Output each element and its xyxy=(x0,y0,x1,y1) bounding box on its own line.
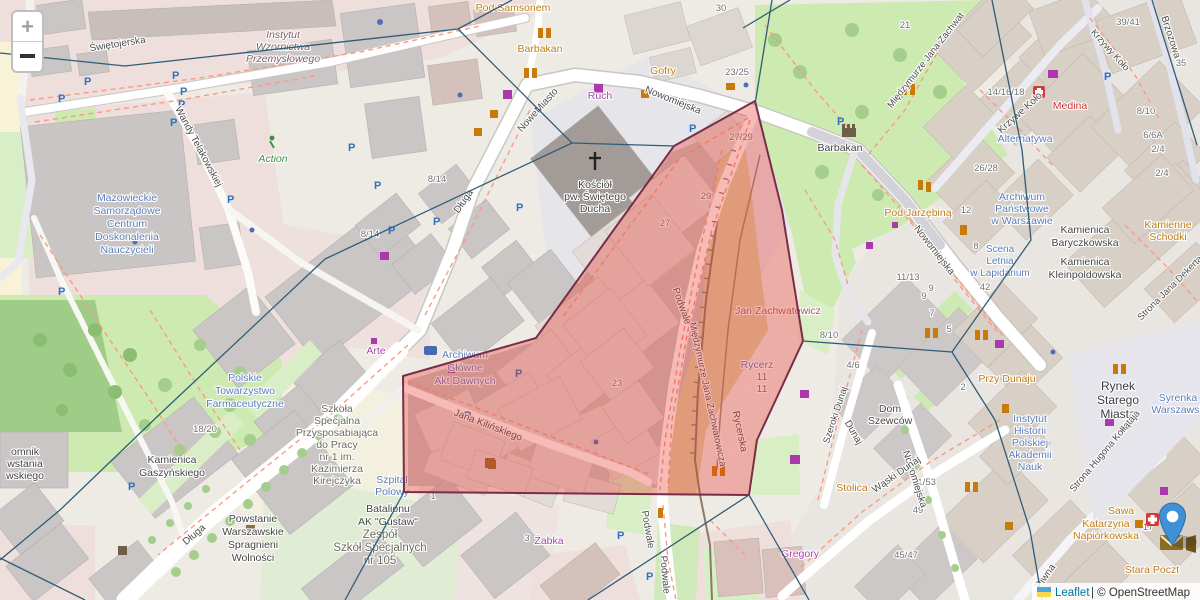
svg-text:P: P xyxy=(374,180,381,192)
svg-text:2/4: 2/4 xyxy=(1155,168,1168,179)
svg-text:Przy Dunaju: Przy Dunaju xyxy=(978,373,1035,385)
svg-text:2: 2 xyxy=(960,382,965,393)
svg-text:Spragnieni: Spragnieni xyxy=(228,539,278,551)
svg-text:+: + xyxy=(21,14,34,39)
svg-text:11/13: 11/13 xyxy=(896,272,919,283)
svg-text:42: 42 xyxy=(980,282,991,293)
svg-text:P: P xyxy=(646,571,653,583)
svg-text:Archiwum: Archiwum xyxy=(999,191,1045,203)
svg-text:Pod Samsonem: Pod Samsonem xyxy=(476,2,551,14)
svg-text:omnik: omnik xyxy=(11,446,40,458)
svg-text:45/47: 45/47 xyxy=(894,550,918,561)
svg-text:Doskonalenia: Doskonalenia xyxy=(95,231,159,243)
svg-text:w Lapidarium: w Lapidarium xyxy=(969,268,1029,279)
svg-text:Pod Jarzębiną: Pod Jarzębiną xyxy=(884,207,951,219)
svg-text:Powstanie: Powstanie xyxy=(229,513,278,525)
svg-text:Kleinpoldowska: Kleinpoldowska xyxy=(1049,269,1122,281)
svg-text:Samorządowe: Samorządowe xyxy=(93,205,160,217)
svg-text:P: P xyxy=(58,93,65,105)
svg-text:3: 3 xyxy=(524,533,529,544)
svg-text:P: P xyxy=(170,117,177,129)
svg-text:Farmaceutyczne: Farmaceutyczne xyxy=(206,398,284,410)
svg-text:Kamienne: Kamienne xyxy=(1144,219,1191,231)
svg-text:Gregory: Gregory xyxy=(781,548,820,560)
svg-text:P: P xyxy=(58,286,65,298)
svg-text:Stolica: Stolica xyxy=(836,482,868,494)
svg-text:5: 5 xyxy=(946,324,951,335)
svg-text:26/28: 26/28 xyxy=(974,163,998,174)
svg-text:35: 35 xyxy=(1176,58,1187,69)
svg-text:8/14: 8/14 xyxy=(428,174,447,185)
svg-text:Kamienica: Kamienica xyxy=(147,454,196,466)
svg-text:P: P xyxy=(516,202,523,214)
svg-text:7: 7 xyxy=(929,308,934,319)
svg-text:Stara Poczt: Stara Poczt xyxy=(1125,564,1179,576)
svg-text:Centrum: Centrum xyxy=(107,218,148,230)
svg-text:do Pracy: do Pracy xyxy=(316,439,358,451)
svg-text:Mazowieckie: Mazowieckie xyxy=(97,192,157,204)
svg-text:Scena: Scena xyxy=(986,244,1015,255)
svg-text:Action: Action xyxy=(257,153,287,165)
svg-text:Starego: Starego xyxy=(1097,393,1139,407)
svg-text:9: 9 xyxy=(928,283,933,294)
svg-text:12: 12 xyxy=(961,205,972,216)
svg-text:Ducha: Ducha xyxy=(580,203,611,215)
svg-text:P: P xyxy=(172,70,179,82)
svg-text:P: P xyxy=(348,142,355,154)
svg-text:8/10: 8/10 xyxy=(820,330,839,341)
svg-text:Sawa: Sawa xyxy=(1108,505,1134,517)
svg-text:Barbakan: Barbakan xyxy=(518,43,563,55)
svg-text:Nauk: Nauk xyxy=(1018,461,1043,473)
svg-text:Arte: Arte xyxy=(366,345,385,357)
svg-text:Ruch: Ruch xyxy=(588,90,613,102)
svg-text:Instytut: Instytut xyxy=(266,29,301,41)
svg-text:wstania: wstania xyxy=(6,458,43,470)
svg-text:4/6: 4/6 xyxy=(846,360,859,371)
svg-text:Kamienica: Kamienica xyxy=(1060,256,1109,268)
svg-text:P: P xyxy=(617,530,624,542)
svg-text:Szkoła: Szkoła xyxy=(321,403,353,415)
svg-text:39/41: 39/41 xyxy=(1116,17,1140,28)
svg-text:Wolności: Wolności xyxy=(232,552,274,564)
svg-text:P: P xyxy=(1104,71,1111,83)
svg-text:Warszawskie: Warszawskie xyxy=(222,526,284,538)
svg-text:9: 9 xyxy=(921,291,926,302)
svg-text:Towarzystwo: Towarzystwo xyxy=(215,385,275,397)
svg-text:Gaszyńskiego: Gaszyńskiego xyxy=(139,467,205,479)
svg-text:Syrenka: Syrenka xyxy=(1159,392,1198,404)
svg-text:Napiórkowska: Napiórkowska xyxy=(1073,530,1139,542)
svg-text:Kirejczyka: Kirejczyka xyxy=(313,475,361,487)
svg-text:Szewców: Szewców xyxy=(868,415,913,427)
svg-text:wskiego: wskiego xyxy=(5,470,44,482)
svg-text:Państwowe: Państwowe xyxy=(995,203,1049,215)
svg-text:Polskiej: Polskiej xyxy=(1012,437,1048,449)
svg-text:Leaflet: Leaflet xyxy=(1055,587,1090,599)
svg-text:nr 1 im.: nr 1 im. xyxy=(319,451,354,463)
svg-text:Warszawsk: Warszawsk xyxy=(1151,404,1200,416)
svg-text:Schodki: Schodki xyxy=(1149,231,1186,243)
svg-text:23/25: 23/25 xyxy=(725,67,749,78)
svg-text:Historii: Historii xyxy=(1014,425,1046,437)
svg-text:Szkół Specjalnych: Szkół Specjalnych xyxy=(333,542,426,554)
svg-text:21: 21 xyxy=(900,20,911,31)
svg-text:Rynek: Rynek xyxy=(1101,379,1136,393)
svg-text:Alternatywa: Alternatywa xyxy=(998,133,1053,145)
svg-text:Przysposabiająca: Przysposabiająca xyxy=(296,427,378,439)
svg-text:P: P xyxy=(128,481,135,493)
svg-text:Letnia: Letnia xyxy=(986,256,1014,267)
svg-text:Gofry: Gofry xyxy=(650,65,676,77)
svg-text:| © OpenStreetMap: | © OpenStreetMap xyxy=(1091,587,1190,599)
svg-text:P: P xyxy=(433,216,440,228)
svg-text:Instytut: Instytut xyxy=(1013,413,1047,425)
svg-text:8/10: 8/10 xyxy=(1137,106,1156,117)
svg-text:6/6A: 6/6A xyxy=(1143,130,1163,141)
svg-text:2/4: 2/4 xyxy=(1151,144,1164,155)
svg-text:P: P xyxy=(227,194,234,206)
svg-text:Baryczkowska: Baryczkowska xyxy=(1051,237,1118,249)
svg-text:P: P xyxy=(84,76,91,88)
svg-text:Specjalna: Specjalna xyxy=(314,415,360,427)
svg-text:P: P xyxy=(180,86,187,98)
svg-text:Nauczycieli: Nauczycieli xyxy=(100,244,153,256)
svg-text:Barbakan: Barbakan xyxy=(818,142,863,154)
svg-text:w Warszawie: w Warszawie xyxy=(990,215,1053,227)
svg-text:pw. Świętego: pw. Świętego xyxy=(564,190,626,203)
svg-text:14/16/18: 14/16/18 xyxy=(988,87,1025,98)
svg-text:18/20: 18/20 xyxy=(193,424,217,435)
svg-text:Żabka: Żabka xyxy=(534,534,563,547)
svg-text:Kościół: Kościół xyxy=(578,179,613,191)
svg-text:Dom: Dom xyxy=(879,403,901,415)
svg-text:Kazimierza: Kazimierza xyxy=(311,463,363,475)
svg-text:Batalionu: Batalionu xyxy=(366,503,410,515)
svg-text:Akademii: Akademii xyxy=(1008,449,1051,461)
svg-text:Katarzyna: Katarzyna xyxy=(1082,518,1129,530)
svg-text:Kamienica: Kamienica xyxy=(1060,224,1109,236)
svg-text:8: 8 xyxy=(973,241,978,252)
svg-text:Przemysłowego: Przemysłowego xyxy=(246,53,320,65)
svg-text:30: 30 xyxy=(716,3,727,14)
svg-text:Medina: Medina xyxy=(1053,100,1088,112)
svg-text:Polskie: Polskie xyxy=(228,372,262,384)
